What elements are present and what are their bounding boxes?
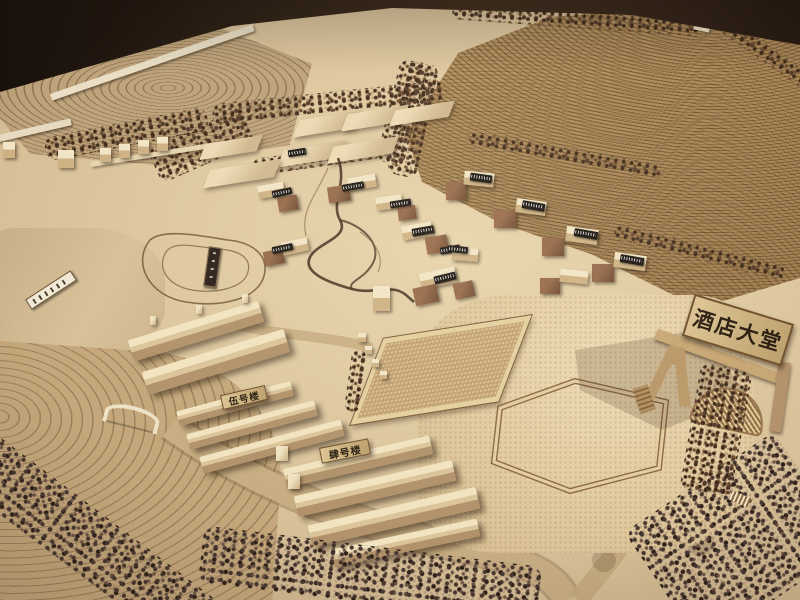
villa-block: [453, 280, 476, 300]
villa-block: [494, 210, 516, 228]
villa-cluster: [446, 238, 496, 282]
garden-pavilion: [380, 371, 387, 379]
building4-tower: [288, 474, 300, 489]
villa-cluster: [262, 232, 316, 276]
barn-chimney: [150, 316, 156, 325]
villa-block: [412, 284, 439, 307]
villa-block: [540, 278, 560, 294]
villa-roof: [559, 269, 588, 285]
building-label: [448, 245, 469, 254]
villa-block: [592, 264, 614, 282]
garden-pavilion: [358, 333, 366, 342]
barn-chimney: [242, 294, 248, 303]
villa-block: [542, 238, 564, 256]
villa-block: [446, 182, 466, 200]
villa-cluster: [588, 240, 652, 296]
chapel-block: [373, 286, 390, 311]
architectural-model-photo: 伍号楼 肆号楼 酒店大堂: [0, 0, 800, 600]
barn-chimney: [196, 305, 202, 314]
villa-cluster: [258, 178, 310, 220]
villa-cluster: [536, 262, 594, 308]
garden-pavilion: [372, 359, 379, 367]
garden-pavilion: [365, 346, 372, 354]
building4-tower: [276, 446, 288, 461]
villa-block: [277, 194, 299, 212]
